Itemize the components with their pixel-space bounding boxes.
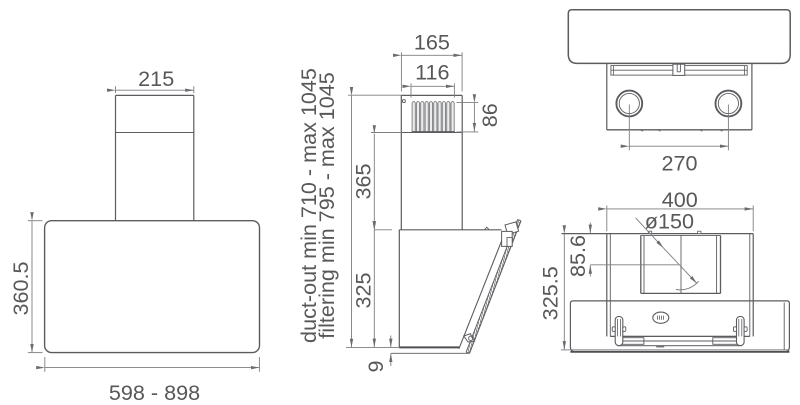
svg-text:270: 270	[661, 150, 697, 175]
svg-text:325.5: 325.5	[538, 266, 563, 320]
svg-text:ø150: ø150	[645, 209, 694, 234]
svg-text:215: 215	[138, 66, 174, 91]
svg-text:365: 365	[351, 163, 376, 199]
svg-text:filtering min 795 - max 1045: filtering min 795 - max 1045	[314, 72, 339, 338]
svg-text:86: 86	[477, 103, 502, 127]
svg-text:165: 165	[414, 29, 450, 54]
svg-text:360.5: 360.5	[8, 261, 33, 315]
svg-text:325: 325	[351, 272, 376, 308]
svg-text:9: 9	[363, 360, 388, 372]
svg-text:116: 116	[415, 60, 449, 85]
svg-text:598 - 898: 598 - 898	[109, 380, 200, 405]
svg-text:85.6: 85.6	[565, 235, 590, 277]
